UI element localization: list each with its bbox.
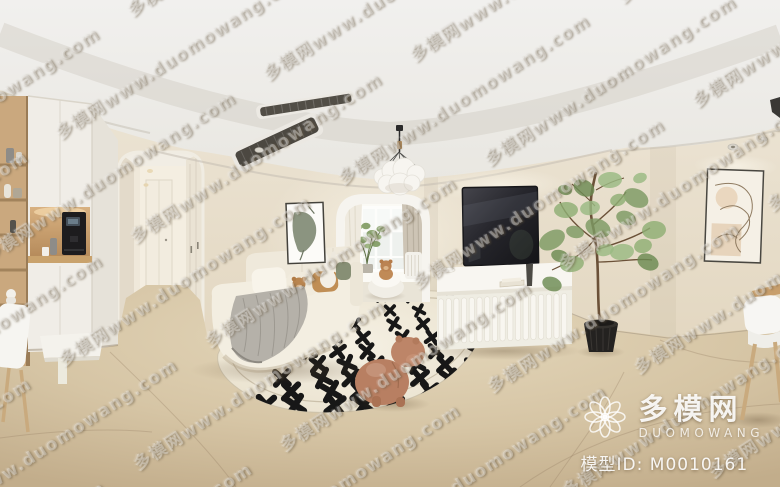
sofa-artwork	[286, 202, 325, 263]
duomowang-watermark-logo: 多模网 DUOMOWANG 模型ID: M0010161	[581, 393, 764, 475]
model-id-value: M0010161	[650, 455, 748, 475]
model-id-label: 模型ID:	[581, 455, 644, 475]
brand-name-cn: 多模网	[639, 394, 744, 424]
decor-bowl	[443, 268, 455, 273]
niche-counter	[28, 256, 92, 263]
panorama-render: 多模网www.duomowang.com 多模网www.duomowang.co…	[0, 0, 780, 487]
teddy-bear	[379, 260, 393, 281]
decor-vase	[526, 264, 533, 286]
green-pillow	[336, 262, 351, 280]
console-fluted-doors	[438, 293, 566, 344]
hallway-downlight	[144, 183, 149, 186]
brand-name-en: DUOMOWANG	[639, 426, 764, 440]
coffee-cabinet	[28, 96, 118, 352]
hallway-downlight	[147, 169, 153, 173]
coffee-machine	[62, 212, 86, 255]
tv-console	[426, 262, 582, 360]
right-chair-back	[742, 294, 780, 336]
niche-cup	[42, 247, 49, 256]
cabinet-side-panel	[92, 104, 118, 350]
duomowang-flower-icon	[581, 393, 629, 441]
radiator	[405, 252, 422, 279]
plant-pot	[584, 320, 618, 353]
model-id: 模型ID: M0010161	[581, 450, 764, 475]
niche-bottle	[50, 238, 57, 255]
coffee-niche	[28, 207, 92, 263]
sofa-armrest	[350, 262, 363, 306]
